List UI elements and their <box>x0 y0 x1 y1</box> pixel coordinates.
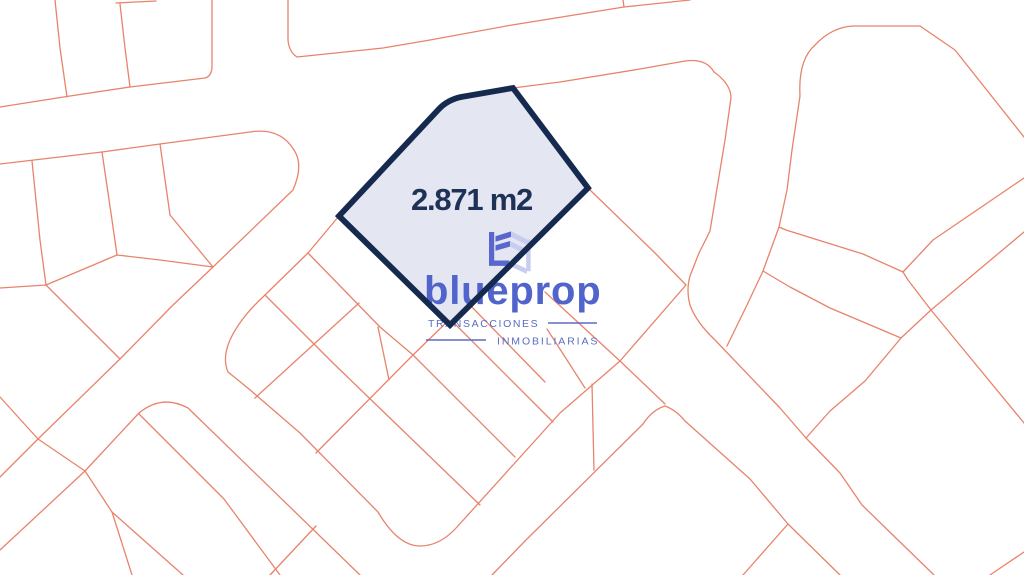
svg-text:blueprop: blueprop <box>424 269 602 313</box>
svg-text:INMOBILIARIAS: INMOBILIARIAS <box>497 336 599 348</box>
svg-text:2.871 m2: 2.871 m2 <box>411 182 532 217</box>
